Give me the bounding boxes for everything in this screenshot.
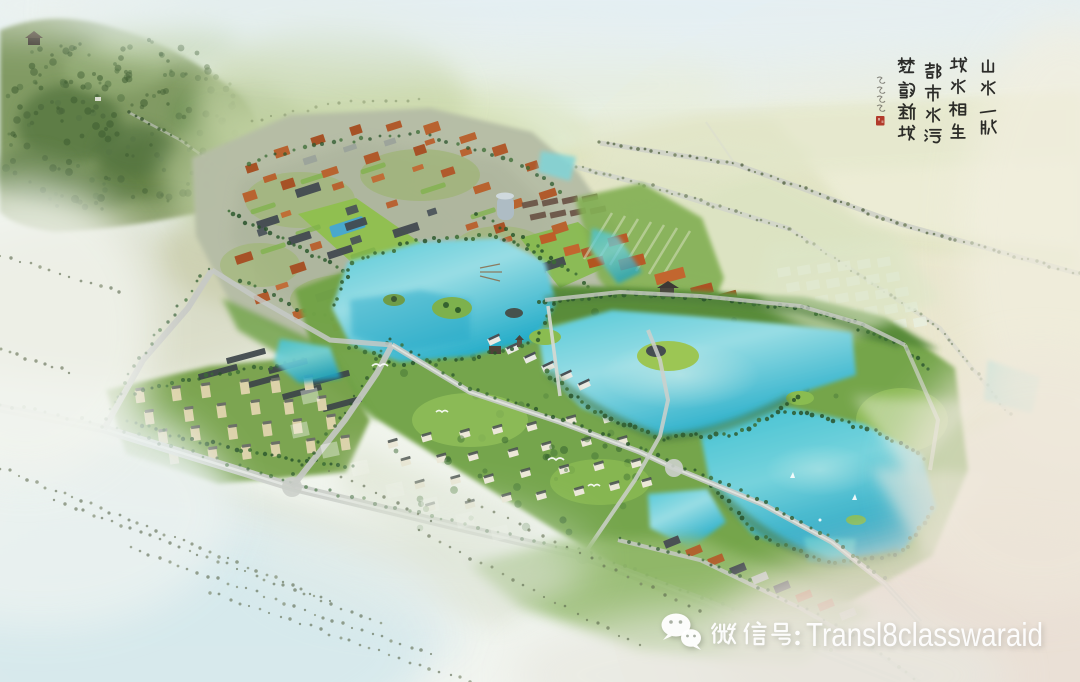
svg-text:Transl8classwaraid: Transl8classwaraid [806, 616, 1043, 653]
